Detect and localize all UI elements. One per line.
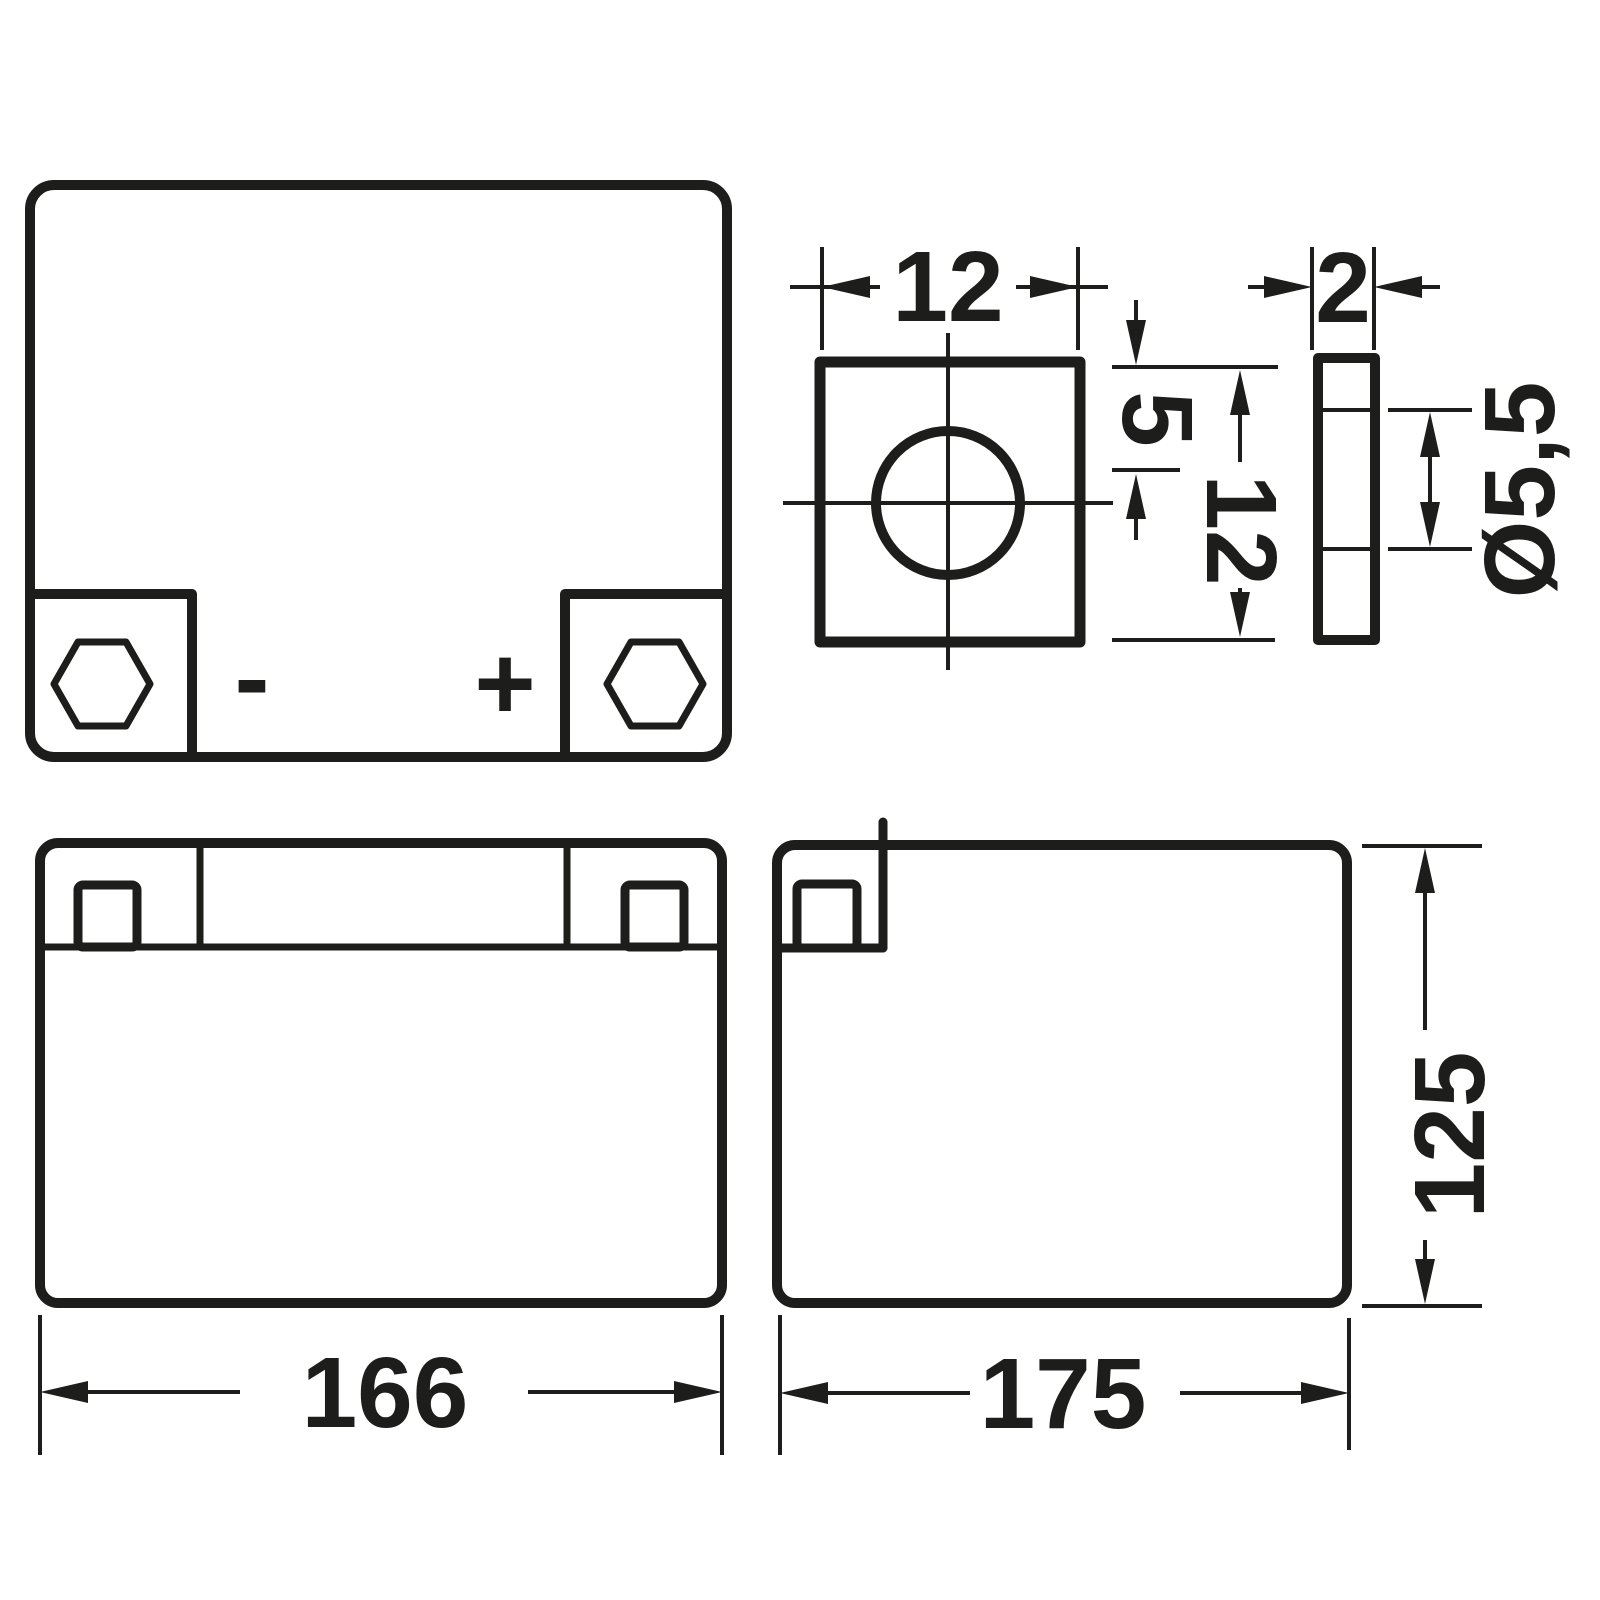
- hole-offset-value: 5: [1101, 391, 1213, 447]
- front-view: [40, 843, 722, 1303]
- negative-terminal-box: [30, 594, 192, 757]
- terminal-tab-side: [797, 884, 857, 948]
- arrowhead-left-icon: [780, 1382, 828, 1404]
- hole-diameter-value: Ø5,5: [1464, 382, 1576, 599]
- negative-polarity-label: -: [235, 620, 270, 737]
- arrowhead-left-icon: [40, 1381, 88, 1403]
- battery-dimension-drawing: - + 12 5 12: [0, 0, 1600, 1600]
- positive-terminal-box: [565, 594, 727, 757]
- positive-terminal-hex-nut-icon: [607, 642, 703, 726]
- arrowhead-left-icon: [1374, 276, 1422, 298]
- terminal-width-value: 12: [892, 231, 1003, 343]
- front-view-outline: [40, 843, 722, 1303]
- arrowhead-up-icon: [1126, 474, 1146, 519]
- overall-height-value: 125: [1394, 1052, 1506, 1219]
- terminal-tab-right: [625, 885, 684, 947]
- side-view: [777, 822, 1347, 1303]
- positive-polarity-label: +: [474, 626, 535, 743]
- dim-overall-height: 125: [1362, 846, 1506, 1306]
- arrowhead-down-icon: [1420, 502, 1440, 547]
- plate-thickness-value: 2: [1315, 232, 1371, 344]
- arrowhead-up-icon: [1420, 412, 1440, 457]
- terminal-height-value: 12: [1185, 474, 1297, 585]
- arrowhead-right-icon: [1301, 1382, 1349, 1404]
- arrowhead-down-icon: [1230, 592, 1250, 637]
- arrowhead-down-icon: [1126, 320, 1146, 365]
- negative-terminal-hex-nut-icon: [54, 642, 150, 726]
- side-view-outline: [777, 845, 1347, 1303]
- top-view: - +: [30, 185, 727, 757]
- terminal-side-detail: [1318, 358, 1375, 640]
- dim-terminal-width: 12: [790, 231, 1108, 350]
- terminal-front-detail: [783, 333, 1113, 670]
- arrowhead-left-icon: [822, 276, 870, 298]
- top-view-outline: [30, 185, 727, 757]
- dim-overall-width: 175: [780, 1315, 1349, 1455]
- arrowhead-up-icon: [1230, 370, 1250, 415]
- overall-length-value: 166: [302, 1337, 469, 1449]
- terminal-plate-outline: [1318, 358, 1375, 640]
- arrowhead-right-icon: [1264, 276, 1312, 298]
- terminal-tab-left: [78, 885, 137, 947]
- dim-hole-diameter: Ø5,5: [1388, 382, 1576, 599]
- overall-width-value: 175: [980, 1338, 1147, 1450]
- arrowhead-right-icon: [674, 1381, 722, 1403]
- dim-overall-length: 166: [40, 1315, 722, 1455]
- arrowhead-up-icon: [1415, 848, 1435, 893]
- arrowhead-right-icon: [1030, 276, 1078, 298]
- dim-plate-thickness: 2: [1248, 232, 1440, 350]
- arrowhead-down-icon: [1415, 1259, 1435, 1304]
